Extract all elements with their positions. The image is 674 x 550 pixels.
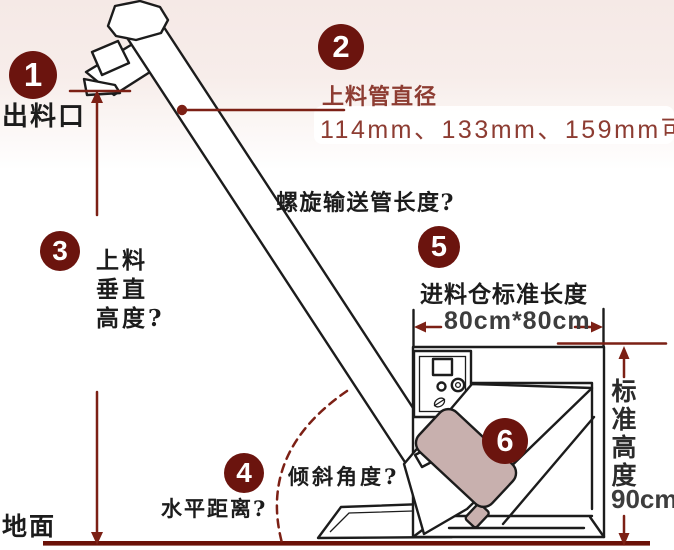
discharge-outlet-label: 出料口: [2, 96, 86, 133]
callout-1-badge: 1: [9, 51, 57, 99]
callout-5-badge: 5: [418, 226, 460, 268]
hopper-length-label: 进料仓标准长度: [420, 275, 588, 309]
diagram-canvas: 1 2 3 4 5 6 出料口 上料管直径 114mm、133mm、159mm可…: [0, 0, 674, 550]
vertical-height-question: 上料 垂直 高度?: [96, 246, 164, 333]
pipe-diameter-options: 114mm、133mm、159mm可: [320, 110, 674, 146]
standard-height-label: 标准高度: [609, 378, 639, 490]
callout-2-badge: 2: [318, 24, 364, 70]
left-arrowhead: [414, 322, 426, 333]
tilt-angle-question: 倾斜角度?: [288, 461, 399, 491]
hopper-size-value: 80cm*80cm: [444, 307, 591, 336]
ground-line: [43, 541, 650, 546]
callout-3-badge: 3: [40, 231, 80, 271]
vertical-height-line1: 上料: [96, 246, 164, 275]
screw-length-question: 螺旋输送管长度?: [276, 185, 455, 217]
standard-height-value: 90cm: [611, 484, 674, 515]
callout-6-badge: 6: [482, 418, 528, 464]
pipe-diameter-label: 上料管直径: [322, 79, 437, 111]
ground-label: 地面: [2, 507, 56, 543]
vertical-height-line3: 高度?: [96, 304, 164, 333]
vertical-height-line2: 垂直: [96, 275, 164, 304]
right-arrowhead: [591, 322, 603, 333]
tube-top-cap: [108, 1, 168, 40]
horizontal-distance-question: 水平距离?: [161, 493, 267, 523]
callout-4-badge: 4: [224, 453, 264, 493]
